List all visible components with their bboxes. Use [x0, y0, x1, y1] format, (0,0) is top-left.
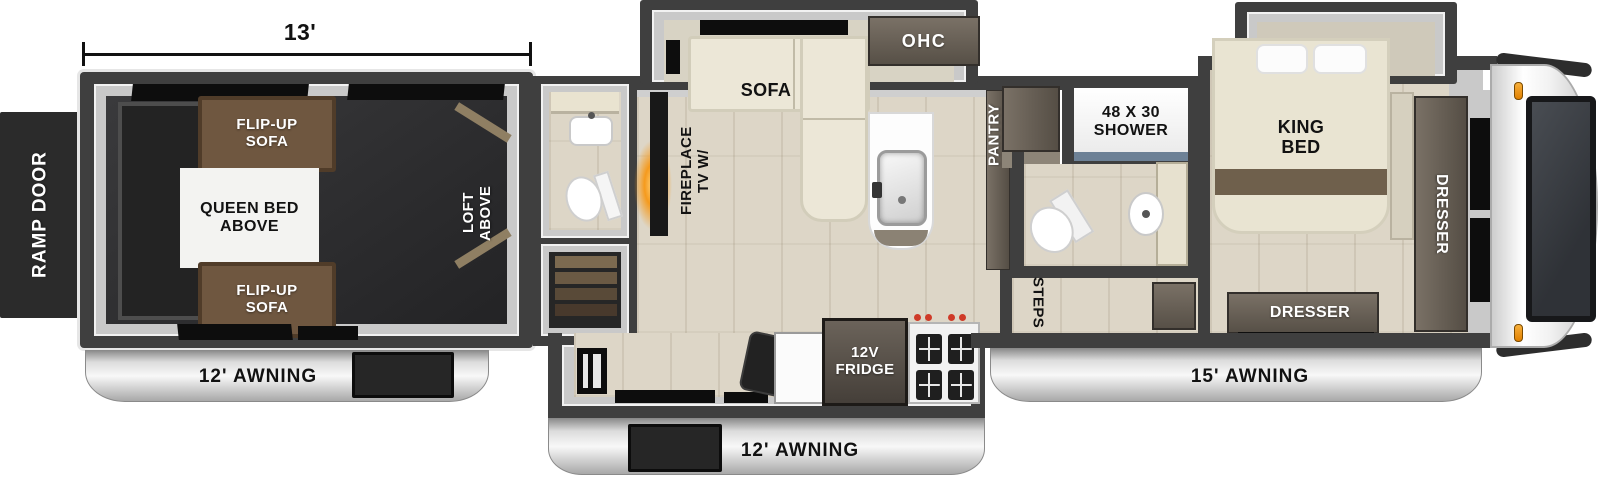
burner: [948, 370, 974, 400]
steps-label: STEPS: [1026, 272, 1048, 334]
flip-up-sofa-top: FLIP-UP SOFA: [198, 96, 336, 172]
shower-label: 48 X 30 SHOWER: [1076, 96, 1186, 148]
garage-window-top-right: [347, 84, 505, 100]
sink-drain: [898, 196, 906, 204]
loft-above-label: LOFT ABOVE: [455, 158, 501, 268]
dimension-line: [83, 53, 532, 56]
halfbath-sink: [569, 116, 613, 146]
front-cap-window: [1526, 96, 1596, 322]
stair-step-2: [555, 272, 617, 284]
corridor-step: [1152, 282, 1196, 330]
bump-window-sill-left: [615, 390, 715, 403]
bump-side-window: [577, 348, 607, 394]
loft-stairs-well: [549, 252, 621, 328]
tv-panel: [650, 92, 668, 236]
stove-knob: [959, 314, 966, 321]
pantry-label: PANTRY: [985, 92, 1005, 178]
dimension-label: 13': [250, 20, 350, 46]
stair-step-1: [555, 256, 617, 268]
halfbath-counter: [551, 92, 619, 114]
queen-bed-above: QUEEN BED ABOVE: [180, 168, 319, 268]
bedroom-left-wall: [1198, 56, 1210, 333]
dimension-tick-right: [529, 42, 532, 66]
sink-faucet: [872, 182, 882, 198]
kitchen-sink: [877, 150, 927, 226]
dresser-side-label: DRESSER: [1422, 128, 1460, 300]
shower-glass: [1074, 152, 1188, 161]
bed-runner: [1215, 169, 1387, 195]
stove-knob: [914, 314, 921, 321]
window-slat: [583, 354, 588, 388]
bath-sink-drain: [1142, 210, 1150, 218]
fridge-12v: 12V FRIDGE: [822, 318, 908, 406]
sofa-chaise: [800, 36, 868, 222]
island-end-cap: [874, 230, 928, 246]
burner: [916, 334, 942, 364]
entry-step-rear: [352, 352, 454, 398]
entry-door: [774, 332, 824, 404]
rv-floorplan: 13' RAMP DOOR FLIP-UP SOFA QUEEN BED ABO…: [0, 0, 1600, 499]
window-slat: [593, 354, 601, 388]
ohc-cabinet: OHC: [868, 16, 980, 66]
king-bed-label: KING BED: [1245, 111, 1357, 163]
dresser-front-label: DRESSER: [1250, 298, 1370, 328]
slide-window-top: [700, 20, 848, 35]
ramp-door: RAMP DOOR: [0, 112, 80, 318]
pantry-cabinet: [1002, 86, 1060, 152]
garage-window-bottom-left: [177, 324, 293, 340]
slide-window-left: [666, 40, 680, 74]
stair-step-3: [555, 288, 617, 300]
dimension-tick-left: [82, 42, 85, 66]
bedroom-wardrobe: [1390, 92, 1414, 240]
awning-front-label: 15' AWNING: [1090, 362, 1410, 392]
stove-knob: [925, 314, 932, 321]
stove: [908, 322, 980, 404]
stair-step-4: [555, 304, 617, 316]
bed-pillow-right: [1313, 44, 1367, 74]
burner: [916, 370, 942, 400]
marker-light-top: [1514, 82, 1523, 100]
halfbath-faucet: [588, 112, 595, 119]
marker-light-bottom: [1514, 324, 1523, 342]
bottom-wall-front: [971, 333, 1492, 348]
tv-fireplace-label: TV W/ FIREPLACE: [672, 96, 720, 246]
garage-window-bottom-right: [298, 326, 358, 340]
bed-pillow-left: [1256, 44, 1308, 74]
awning-main-label: 12' AWNING: [650, 436, 950, 466]
sofa-label: SOFA: [706, 77, 826, 103]
stove-knob: [948, 314, 955, 321]
